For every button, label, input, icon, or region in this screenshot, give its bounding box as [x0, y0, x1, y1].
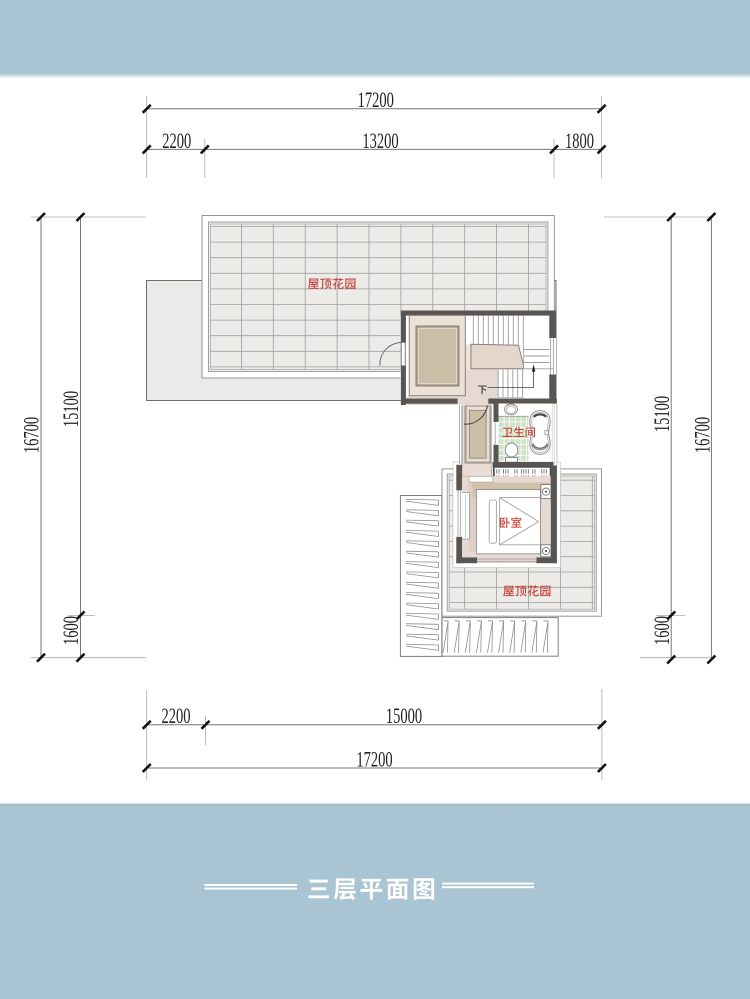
svg-text:2200: 2200: [162, 704, 191, 728]
svg-text:16700: 16700: [691, 417, 715, 453]
svg-text:17200: 17200: [356, 748, 392, 772]
svg-text:17200: 17200: [358, 88, 394, 112]
svg-text:16700: 16700: [20, 417, 44, 453]
svg-text:1600: 1600: [650, 616, 674, 645]
svg-text:13200: 13200: [362, 129, 398, 153]
svg-text:1800: 1800: [565, 129, 594, 153]
svg-text:1600: 1600: [59, 616, 83, 645]
svg-text:15100: 15100: [59, 391, 83, 427]
svg-text:15100: 15100: [650, 396, 674, 432]
svg-text:15000: 15000: [386, 704, 422, 728]
svg-text:2200: 2200: [162, 129, 191, 153]
